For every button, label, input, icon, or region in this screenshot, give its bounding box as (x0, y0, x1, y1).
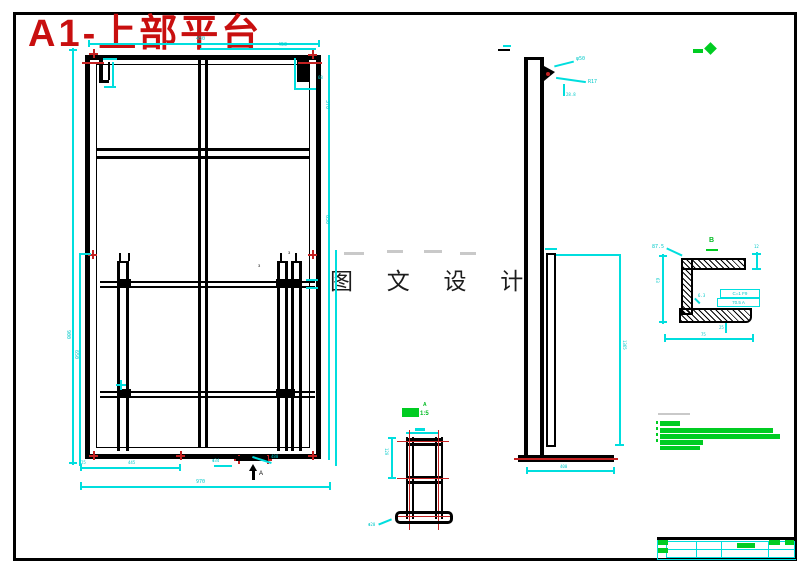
side-column (524, 57, 528, 460)
detail-label: B (709, 237, 714, 244)
dim-line (335, 250, 337, 466)
dim-right-upper: 370 (324, 100, 329, 109)
front-post-right (299, 261, 302, 451)
side-channel-cap (546, 445, 556, 447)
top-tick (498, 49, 510, 51)
hole-mark (546, 72, 550, 76)
weld-arrow (280, 253, 282, 261)
dim-line (391, 437, 393, 479)
centerline-mark (298, 62, 322, 64)
datum-cross (308, 50, 317, 59)
dim-detail-height: 63 (655, 278, 659, 283)
corner-dim-line (294, 58, 296, 88)
dim-tick (526, 467, 528, 474)
front-post-cap (117, 261, 129, 263)
dim-line (563, 84, 565, 96)
dim-line (79, 254, 81, 466)
title-block-cell-text (737, 543, 755, 548)
dim-bottom-4: 480 (271, 455, 278, 459)
weld-arrow (128, 253, 130, 261)
dim-tick (664, 334, 666, 342)
notes-line (660, 434, 780, 439)
dim-left-inner: 650 (73, 350, 78, 359)
side-channel (554, 253, 556, 447)
dim-tick (88, 40, 90, 47)
dim-tick (545, 248, 557, 250)
front-post-right (277, 261, 280, 451)
dim-tick (615, 444, 624, 446)
datum-cross (308, 451, 317, 460)
dim-bottom-2: 445 (128, 461, 135, 465)
dim-tick (752, 268, 761, 270)
notes-artifact (658, 413, 690, 415)
notes-line (660, 440, 703, 445)
front-joint-plate (276, 279, 301, 288)
dim-tick (659, 321, 667, 323)
watermark-artifact (387, 250, 403, 253)
dim-bottom-total: 970 (196, 480, 205, 485)
side-column (540, 57, 544, 460)
datum-cross (89, 451, 98, 460)
watermark-artifact (344, 252, 364, 255)
front-post-left (126, 261, 129, 451)
view-marker (693, 49, 703, 53)
dim-tick (116, 384, 126, 386)
dim-radius: R17 (588, 80, 597, 85)
dim-tick (306, 287, 318, 289)
centerline-mark (514, 458, 618, 460)
dim-base: 400 (560, 465, 567, 469)
watermark-artifact (460, 252, 476, 255)
centerline (397, 478, 449, 479)
notes-line (660, 446, 700, 450)
datum-cross (176, 451, 185, 460)
front-cross-member (96, 156, 310, 159)
watermark-text: 图 文 设 计 (330, 262, 537, 296)
ladder-foot (395, 511, 453, 524)
dim-below: 25 (719, 326, 724, 330)
title-block-cell-text (658, 540, 668, 545)
dim-detail-width: 75 (701, 333, 706, 337)
datum-cross (308, 250, 317, 259)
front-post-right (285, 261, 288, 451)
dim-line (619, 254, 621, 446)
dim-tick (659, 255, 667, 257)
dim-foot: Φ20 (368, 523, 375, 527)
dim-line (72, 48, 74, 465)
corner-dim-line (112, 62, 114, 88)
dim-line (214, 465, 232, 467)
datum-cross (89, 49, 98, 58)
dim-bottom-3: Φ34 (212, 459, 219, 463)
dim-line (80, 486, 330, 488)
dim-tick (503, 45, 511, 47)
dim-line (526, 470, 614, 472)
front-post-right (291, 261, 294, 451)
dim-tick (179, 464, 181, 471)
section-title-block (402, 408, 419, 417)
dim-right-lower: 650 (324, 215, 329, 224)
dim-tick (80, 464, 82, 471)
front-post-cap (277, 261, 288, 263)
dim-section-height: 120 (384, 448, 388, 455)
dim-tick (306, 279, 318, 281)
section-arrow-label: A (259, 471, 263, 477)
gap-label: 3 (258, 264, 260, 268)
dim-tick (79, 253, 91, 255)
dim-tick (388, 437, 396, 439)
dim-diameter: φ50 (576, 57, 585, 62)
dim-tick (329, 482, 331, 490)
dim-height: 1365 (622, 340, 626, 350)
corner-detail (108, 62, 110, 80)
gap-label: 3 (288, 251, 290, 255)
front-center-member (205, 60, 208, 448)
dim-tick (69, 49, 77, 51)
dim-tick (388, 477, 396, 479)
dim-tick (752, 253, 761, 255)
corner-detail (99, 80, 109, 83)
green-dashed-line (656, 421, 658, 445)
dim-tick (752, 334, 754, 342)
weld-arrow (295, 253, 297, 261)
datum-cross (88, 250, 97, 259)
side-channel-cap (546, 253, 556, 255)
front-cross-member (96, 148, 310, 151)
dim-tick (69, 462, 77, 464)
dim-flange: 12 (754, 245, 759, 249)
dim-line (200, 48, 316, 50)
dim-tick (318, 40, 320, 47)
section-label: A (423, 403, 427, 408)
channel-bottom-flange (679, 308, 752, 323)
corner-dim-line (104, 86, 116, 88)
corner-dim-line (294, 88, 316, 90)
dim-offset: 28.8 (566, 93, 576, 97)
channel-web (681, 258, 693, 315)
dim-left-outer: 900 (65, 330, 70, 339)
dim-line (662, 254, 664, 324)
dim-line (725, 323, 727, 333)
dim-corner: 68 (318, 76, 323, 80)
cad-canvas: { "title": "A1-上部平台", "watermark": "图 文 … (0, 0, 808, 572)
corner-dim-line (103, 58, 117, 60)
front-center-member (198, 60, 201, 448)
dim-leader-875: 87.5 (652, 245, 664, 250)
section-scale: 1:5 (420, 411, 429, 417)
detail-label-underline (706, 249, 718, 251)
dim-line (556, 254, 620, 256)
dim-top-left: 450 (196, 37, 205, 42)
centerline-mark (82, 62, 104, 64)
title-block-cell-text (769, 540, 780, 545)
dim-top-right: 450 (278, 43, 287, 48)
tolerance-frame: C=1 F9 (720, 289, 760, 298)
watermark-artifact (424, 250, 442, 253)
title-block-divider (666, 549, 795, 550)
title-block-bottom (657, 559, 796, 560)
side-channel (546, 253, 548, 447)
notes-line (660, 421, 680, 426)
centerline (397, 441, 449, 442)
section-arrow-icon (252, 470, 255, 480)
dim-line (664, 338, 753, 340)
front-post-left (117, 261, 120, 451)
title-block-cell-text (785, 540, 794, 545)
dim-label-blob (415, 428, 425, 431)
front-post-cap (291, 261, 302, 263)
dim-tick (80, 482, 82, 490)
notes-line (660, 428, 773, 433)
dim-bottom-1: 25 (81, 461, 86, 465)
dim-line (406, 432, 438, 434)
weld-arrow (119, 253, 121, 261)
side-column-cap (524, 57, 544, 60)
dim-line (80, 467, 180, 469)
dim-line (328, 55, 330, 460)
dim-tick (613, 467, 615, 474)
title-block-cell-text (658, 548, 668, 553)
tolerance-frame: 70.5 A (717, 298, 760, 307)
roughness-label: 6.3 (698, 294, 705, 298)
